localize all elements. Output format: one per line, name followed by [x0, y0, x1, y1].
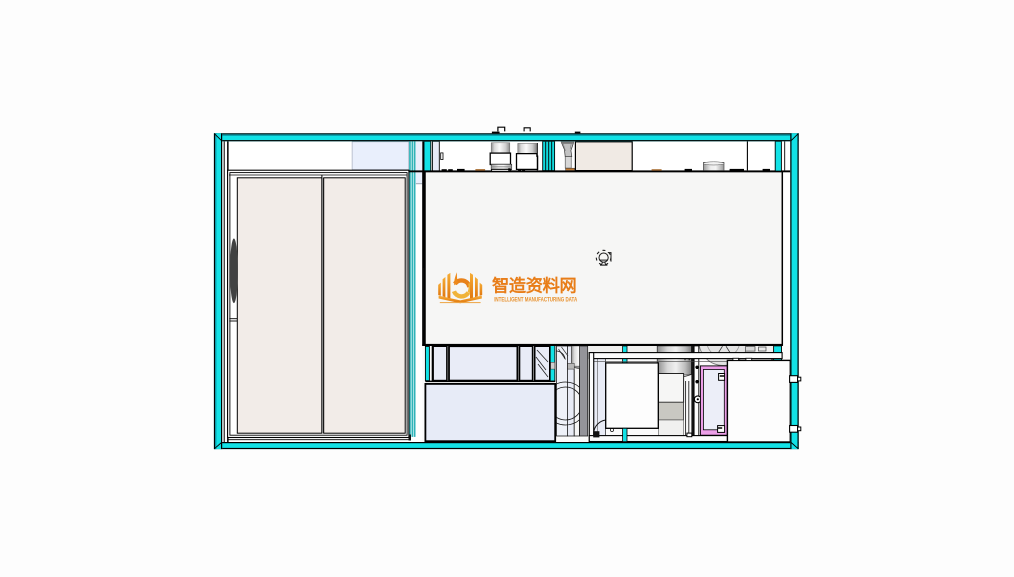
svg-text:INTELLIGENT MANUFACTURING DATA: INTELLIGENT MANUFACTURING DATA	[494, 298, 577, 304]
svg-text:智造资料网: 智造资料网	[492, 276, 577, 296]
